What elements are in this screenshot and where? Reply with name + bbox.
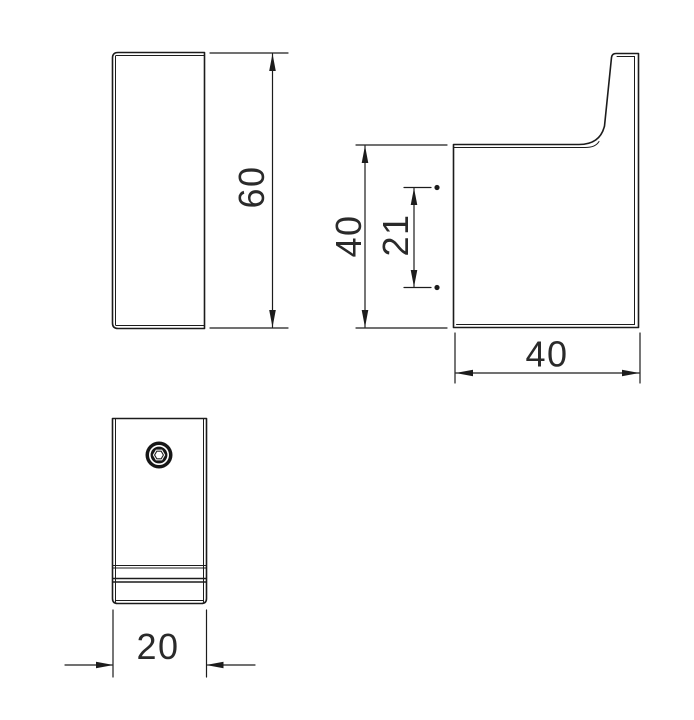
hook-profile-outline xyxy=(454,54,639,328)
arrow-down-icon xyxy=(269,310,276,328)
reference-dot xyxy=(434,185,439,190)
arrow-up-icon xyxy=(411,188,418,205)
dimension-60: 60 xyxy=(210,53,288,328)
arrow-left-icon xyxy=(206,662,224,669)
arrow-up-icon xyxy=(269,54,276,72)
arrow-right-icon xyxy=(96,662,114,669)
arrow-right-icon xyxy=(622,370,640,377)
arrow-down-icon xyxy=(362,310,369,328)
reference-dot xyxy=(434,285,439,290)
dimension-20: 20 xyxy=(65,610,255,677)
arrow-left-icon xyxy=(456,370,474,377)
flat-panel-view xyxy=(113,53,205,329)
dimension-21: 21 xyxy=(375,185,440,290)
dimension-label-20: 20 xyxy=(136,626,179,667)
hook-profile-view xyxy=(454,54,639,328)
drawing-canvas: 60 40 21 40 xyxy=(0,0,694,720)
arrow-down-icon xyxy=(411,270,418,287)
front-view xyxy=(113,419,207,604)
dimension-label-60: 60 xyxy=(231,165,272,208)
dimension-label-21: 21 xyxy=(375,213,416,256)
flat-panel-outline xyxy=(113,53,205,329)
arrow-up-icon xyxy=(362,146,369,164)
dimension-label-40h: 40 xyxy=(525,334,568,375)
dimension-40-horizontal: 40 xyxy=(455,333,640,383)
technical-drawing: 60 40 21 40 xyxy=(0,0,694,720)
dimension-label-40v: 40 xyxy=(328,214,369,257)
hex-socket-screw-head-icon xyxy=(146,442,173,469)
